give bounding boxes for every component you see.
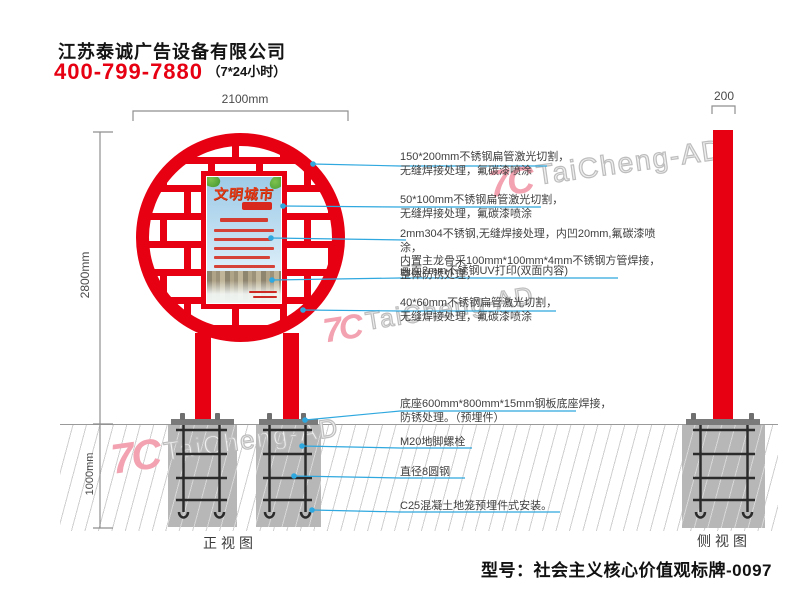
- annotation-line: 40*60mm不锈钢扁管激光切割，: [400, 297, 672, 311]
- poster-credit-line: [253, 296, 277, 299]
- annotation-line: 无缝焊接处理，氟碳漆喷涂: [400, 311, 672, 325]
- poster-artwork: 文明城市: [206, 176, 282, 304]
- annotation-line: 画面2mm不锈钢UV打印(双面内容): [400, 265, 672, 279]
- city-skyline-image: [207, 271, 281, 303]
- annotation-inner-frame: 50*100mm不锈钢扁管激光切割， 无缝焊接处理，氟碳漆喷涂: [400, 194, 672, 221]
- annotation-concrete: C25混凝土地笼预埋件式安装。: [400, 500, 672, 514]
- dim-label-depth: 1000mm: [84, 442, 96, 506]
- annotation-lower-frame: 40*60mm不锈钢扁管激光切割， 无缝焊接处理，氟碳漆喷涂: [400, 297, 672, 324]
- poster-credit-line: [249, 291, 277, 294]
- dim-label-side-width: 200: [703, 89, 745, 103]
- post-side-view: [713, 130, 733, 425]
- annotation-line: 无缝焊接处理，氟碳漆喷涂: [400, 208, 672, 222]
- annotation-base-plate: 底座600mm*800mm*15mm钢板底座焊接， 防锈处理。（预埋件）: [400, 398, 672, 425]
- annotation-rebar: 直径8圆钢: [400, 466, 672, 480]
- hotline-hours: （7*24小时）: [207, 64, 286, 79]
- model-number: 型号：社会主义核心价值观标牌-0097: [481, 556, 772, 581]
- poster-text-line: [214, 256, 270, 259]
- annotation-line: 无缝焊接处理，氟碳漆喷涂: [400, 165, 672, 179]
- dim-label-top-width: 2100mm: [190, 92, 300, 106]
- poster-text-line: [214, 247, 274, 250]
- dim-label-height: 2800mm: [78, 243, 92, 307]
- annotation-line: 直径8圆钢: [400, 466, 672, 480]
- annotation-line: 150*200mm不锈钢扁管激光切割，: [400, 151, 672, 165]
- poster-text-line: [214, 238, 272, 241]
- foundation-front-right: [256, 425, 321, 527]
- foundation-side: [682, 425, 765, 528]
- annotation-line: 2mm304不锈钢,无缝焊接处理，内凹20mm,氟碳漆喷涂，: [400, 228, 672, 255]
- poster-text-line: [214, 265, 275, 268]
- hotline-number: 400-799-7880: [54, 59, 203, 84]
- annotation-line: 防锈处理。（预埋件）: [400, 412, 672, 426]
- annotation-anchor-bolt: M20地脚螺栓: [400, 436, 672, 450]
- annotation-line: 50*100mm不锈钢扁管激光切割，: [400, 194, 672, 208]
- side-view-label: 侧视图: [682, 531, 766, 551]
- poster-text-line: [214, 229, 274, 232]
- annotation-line: C25混凝土地笼预埋件式安装。: [400, 500, 672, 514]
- hotline: 400-799-7880 （7*24小时）: [54, 59, 286, 85]
- poster-title: 文明城市: [206, 184, 282, 204]
- poster-badge: [242, 202, 272, 210]
- annotation-line: M20地脚螺栓: [400, 436, 672, 450]
- poster-heading-line: [220, 218, 268, 222]
- dim-bracket-2100: [133, 111, 348, 121]
- annotation-line: 底座600mm*800mm*15mm钢板底座焊接，: [400, 398, 672, 412]
- dim-bracket-200: [712, 106, 735, 114]
- annotation-top-frame: 150*200mm不锈钢扁管激光切割， 无缝焊接处理，氟碳漆喷涂: [400, 151, 672, 178]
- front-view-label: 正视图: [183, 533, 277, 553]
- foundation-front-left: [168, 425, 237, 527]
- poster-panel: 文明城市: [201, 171, 287, 309]
- annotation-uv-print: 画面2mm不锈钢UV打印(双面内容): [400, 265, 672, 279]
- dim-line-2800: [93, 132, 113, 424]
